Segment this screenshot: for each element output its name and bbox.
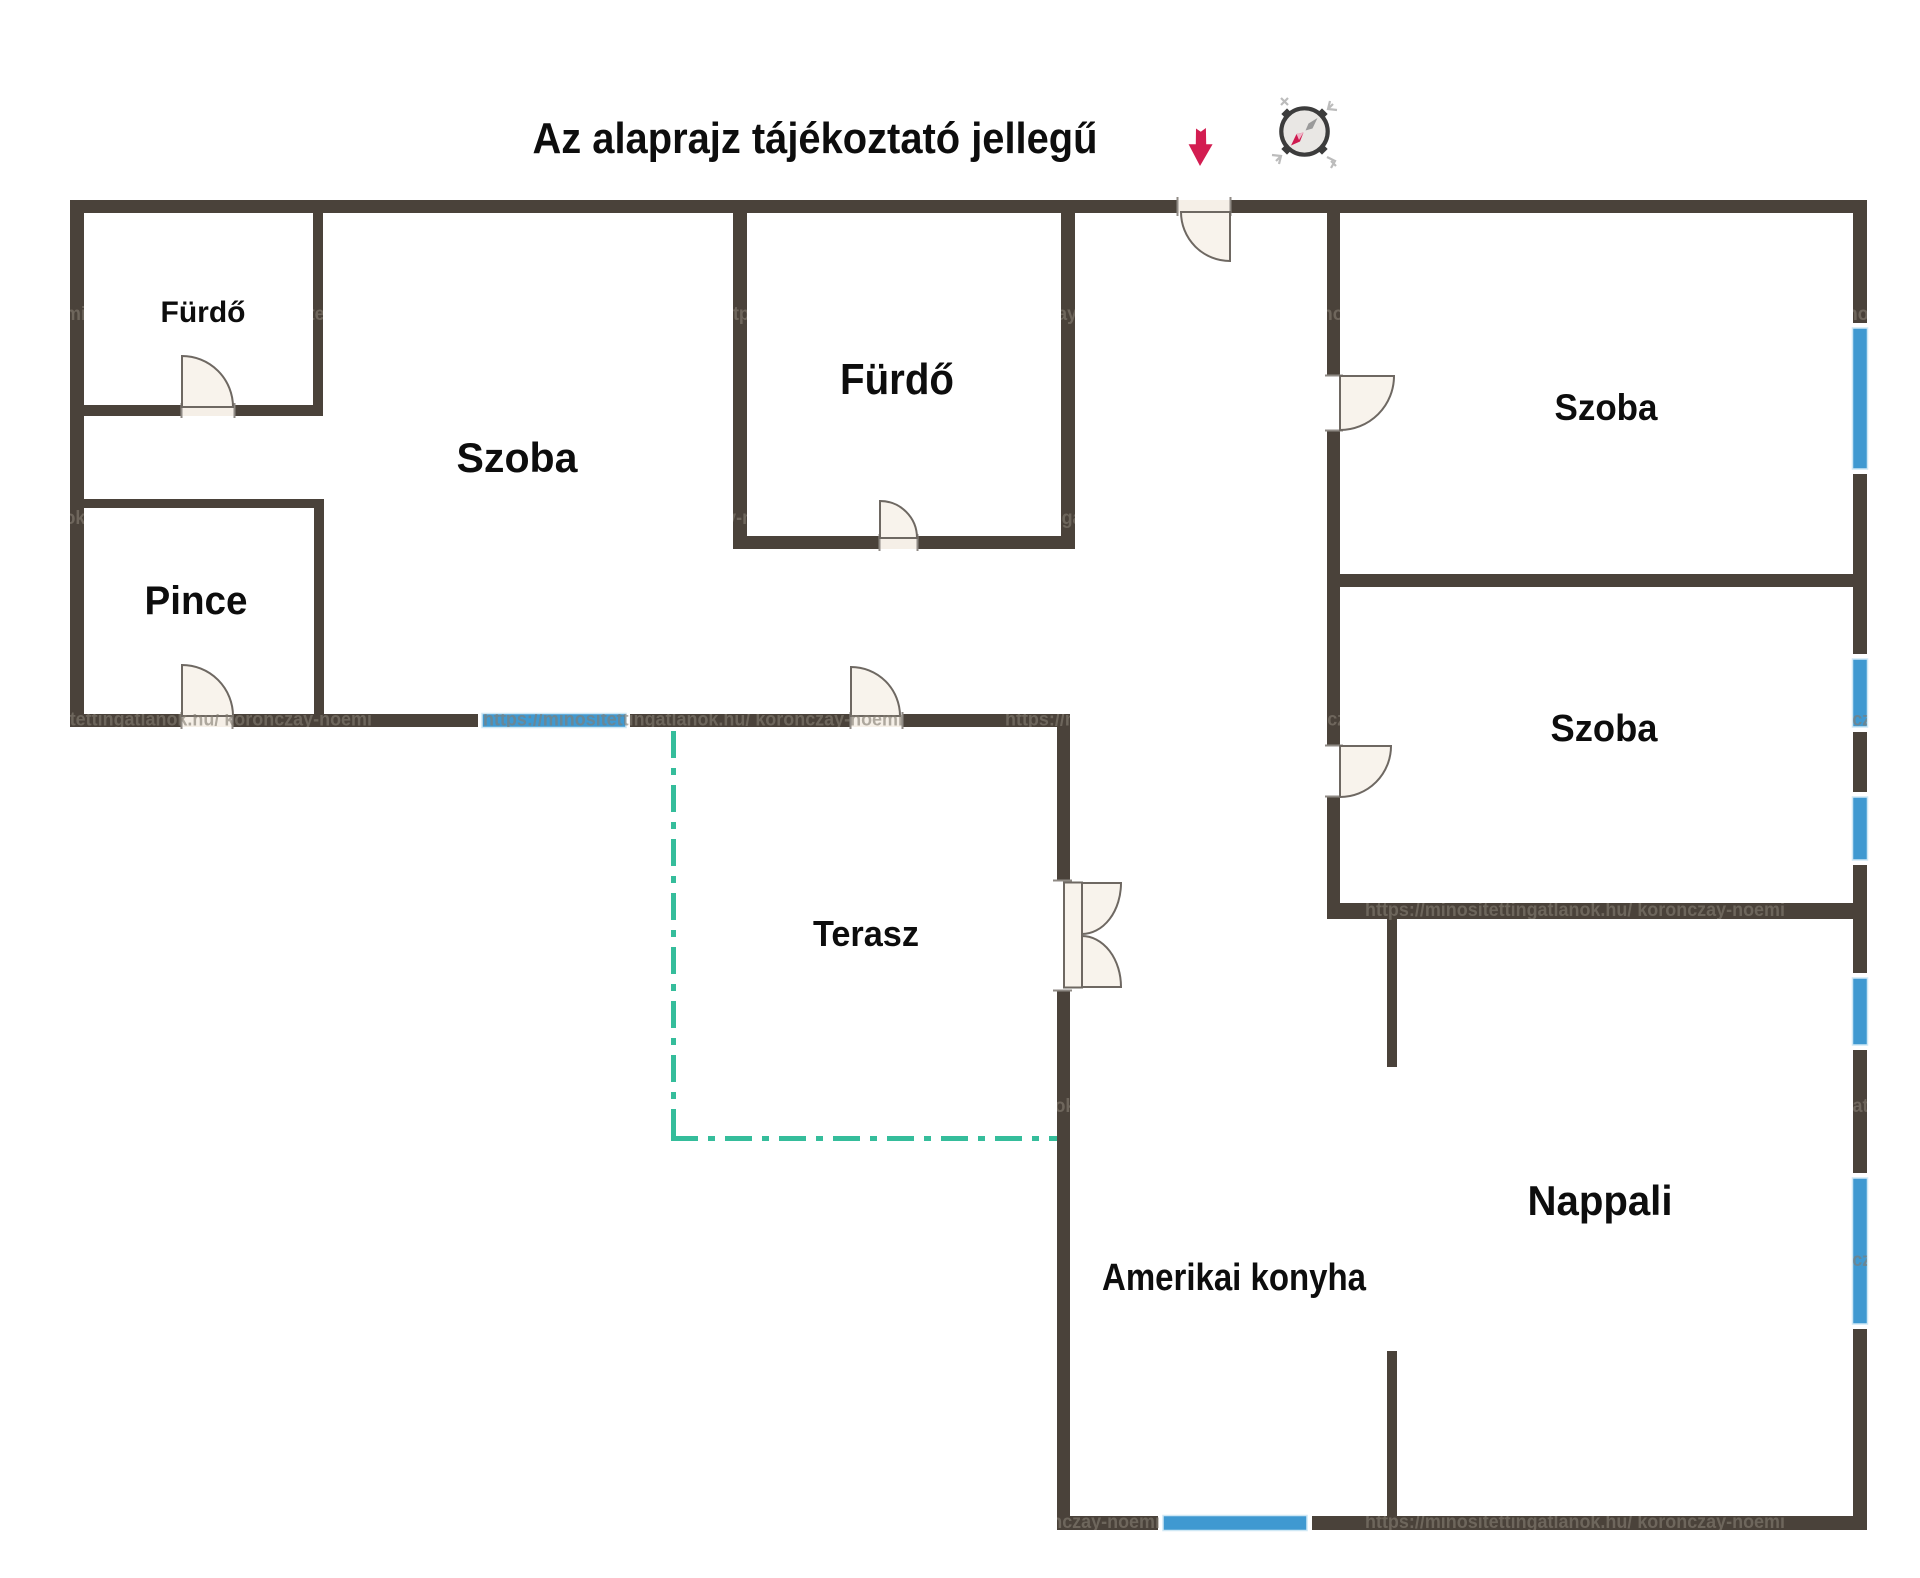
svg-text:Terasz: Terasz — [813, 913, 919, 954]
svg-text:https://minositettingatlanok.h: https://minositettingatlanok.hu/ koroncz… — [1365, 900, 1785, 921]
svg-text:Az alaprajz tájékoztató jelleg: Az alaprajz tájékoztató jellegű — [533, 114, 1098, 163]
svg-text:Szoba: Szoba — [1551, 708, 1659, 750]
svg-text:Amerikai konyha: Amerikai konyha — [1102, 1257, 1367, 1299]
svg-text:Fürdő: Fürdő — [161, 296, 246, 329]
svg-text:Nappali: Nappali — [1528, 1177, 1673, 1224]
svg-text:Fürdő: Fürdő — [840, 355, 954, 404]
svg-text:Pince: Pince — [145, 579, 248, 623]
svg-text:Szoba: Szoba — [1555, 387, 1658, 428]
svg-text:Szoba: Szoba — [457, 434, 579, 481]
